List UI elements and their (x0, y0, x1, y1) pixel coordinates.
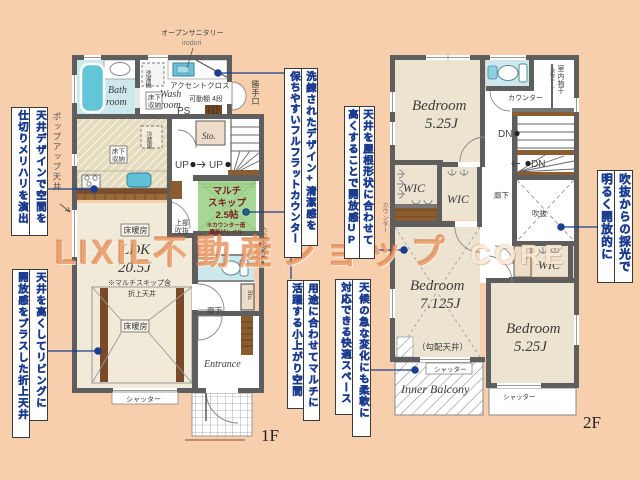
svg-text:2F: 2F (583, 413, 601, 432)
svg-text:WIC: WIC (447, 192, 470, 206)
svg-text:5.25J: 5.25J (425, 116, 459, 132)
svg-text:room: room (106, 97, 127, 108)
svg-text:Bedroom: Bedroom (412, 98, 467, 114)
svg-text:Sto.: Sto. (246, 290, 254, 301)
svg-text:DN: DN (498, 129, 512, 140)
svg-text:冷蔵庫: 冷蔵庫 (145, 130, 152, 150)
svg-text:DN: DN (531, 159, 545, 170)
svg-text:Bath: Bath (108, 85, 127, 96)
svg-text:2.5帖: 2.5帖 (216, 209, 239, 221)
svg-text:Inner Balcony: Inner Balcony (400, 382, 470, 396)
svg-text:廊下: 廊下 (494, 190, 509, 200)
svg-text:収納: 収納 (112, 154, 125, 163)
svg-text:床下: 床下 (112, 147, 126, 156)
svg-text:Bedroom: Bedroom (506, 321, 561, 337)
svg-text:オープンサニタリー: オープンサニタリー (161, 28, 224, 37)
svg-text:収納: 収納 (148, 100, 161, 109)
svg-text:UP: UP (209, 160, 223, 171)
svg-text:1F: 1F (261, 426, 279, 445)
svg-text:Entrance: Entrance (203, 359, 241, 370)
svg-text:7.125J: 7.125J (420, 296, 462, 312)
svg-text:マルチ: マルチ (213, 186, 242, 197)
svg-text:吹抜: 吹抜 (532, 208, 547, 218)
svg-text:洗濯機: 洗濯機 (144, 69, 151, 89)
svg-text:WIC: WIC (403, 181, 426, 195)
svg-text:（勾配天井）: （勾配天井） (417, 342, 468, 352)
svg-text:5.25J: 5.25J (514, 339, 548, 355)
svg-text:irodori: irodori (182, 40, 202, 47)
svg-text:スキップ: スキップ (208, 197, 247, 209)
svg-text:Wash: Wash (160, 89, 181, 100)
svg-text:Bedroom: Bedroom (410, 278, 465, 294)
svg-text:UP: UP (175, 160, 189, 171)
svg-text:床暖房: 床暖房 (124, 321, 148, 331)
svg-text:折上天井: 折上天井 (128, 289, 156, 298)
svg-text:PS: PS (177, 106, 191, 117)
svg-text:※マルチスキップ含: ※マルチスキップ含 (108, 278, 171, 287)
svg-text:シャッター: シャッター (503, 392, 536, 401)
svg-text:床下: 床下 (148, 93, 162, 102)
svg-text:シャッター: シャッター (126, 395, 161, 404)
svg-text:カウンター: カウンター (508, 93, 543, 102)
svg-text:可動棚 4段: 可動棚 4段 (189, 94, 223, 103)
svg-text:廊下: 廊下 (207, 305, 222, 315)
svg-text:Sto.: Sto. (202, 131, 216, 141)
svg-text:シャッター: シャッター (434, 365, 467, 374)
